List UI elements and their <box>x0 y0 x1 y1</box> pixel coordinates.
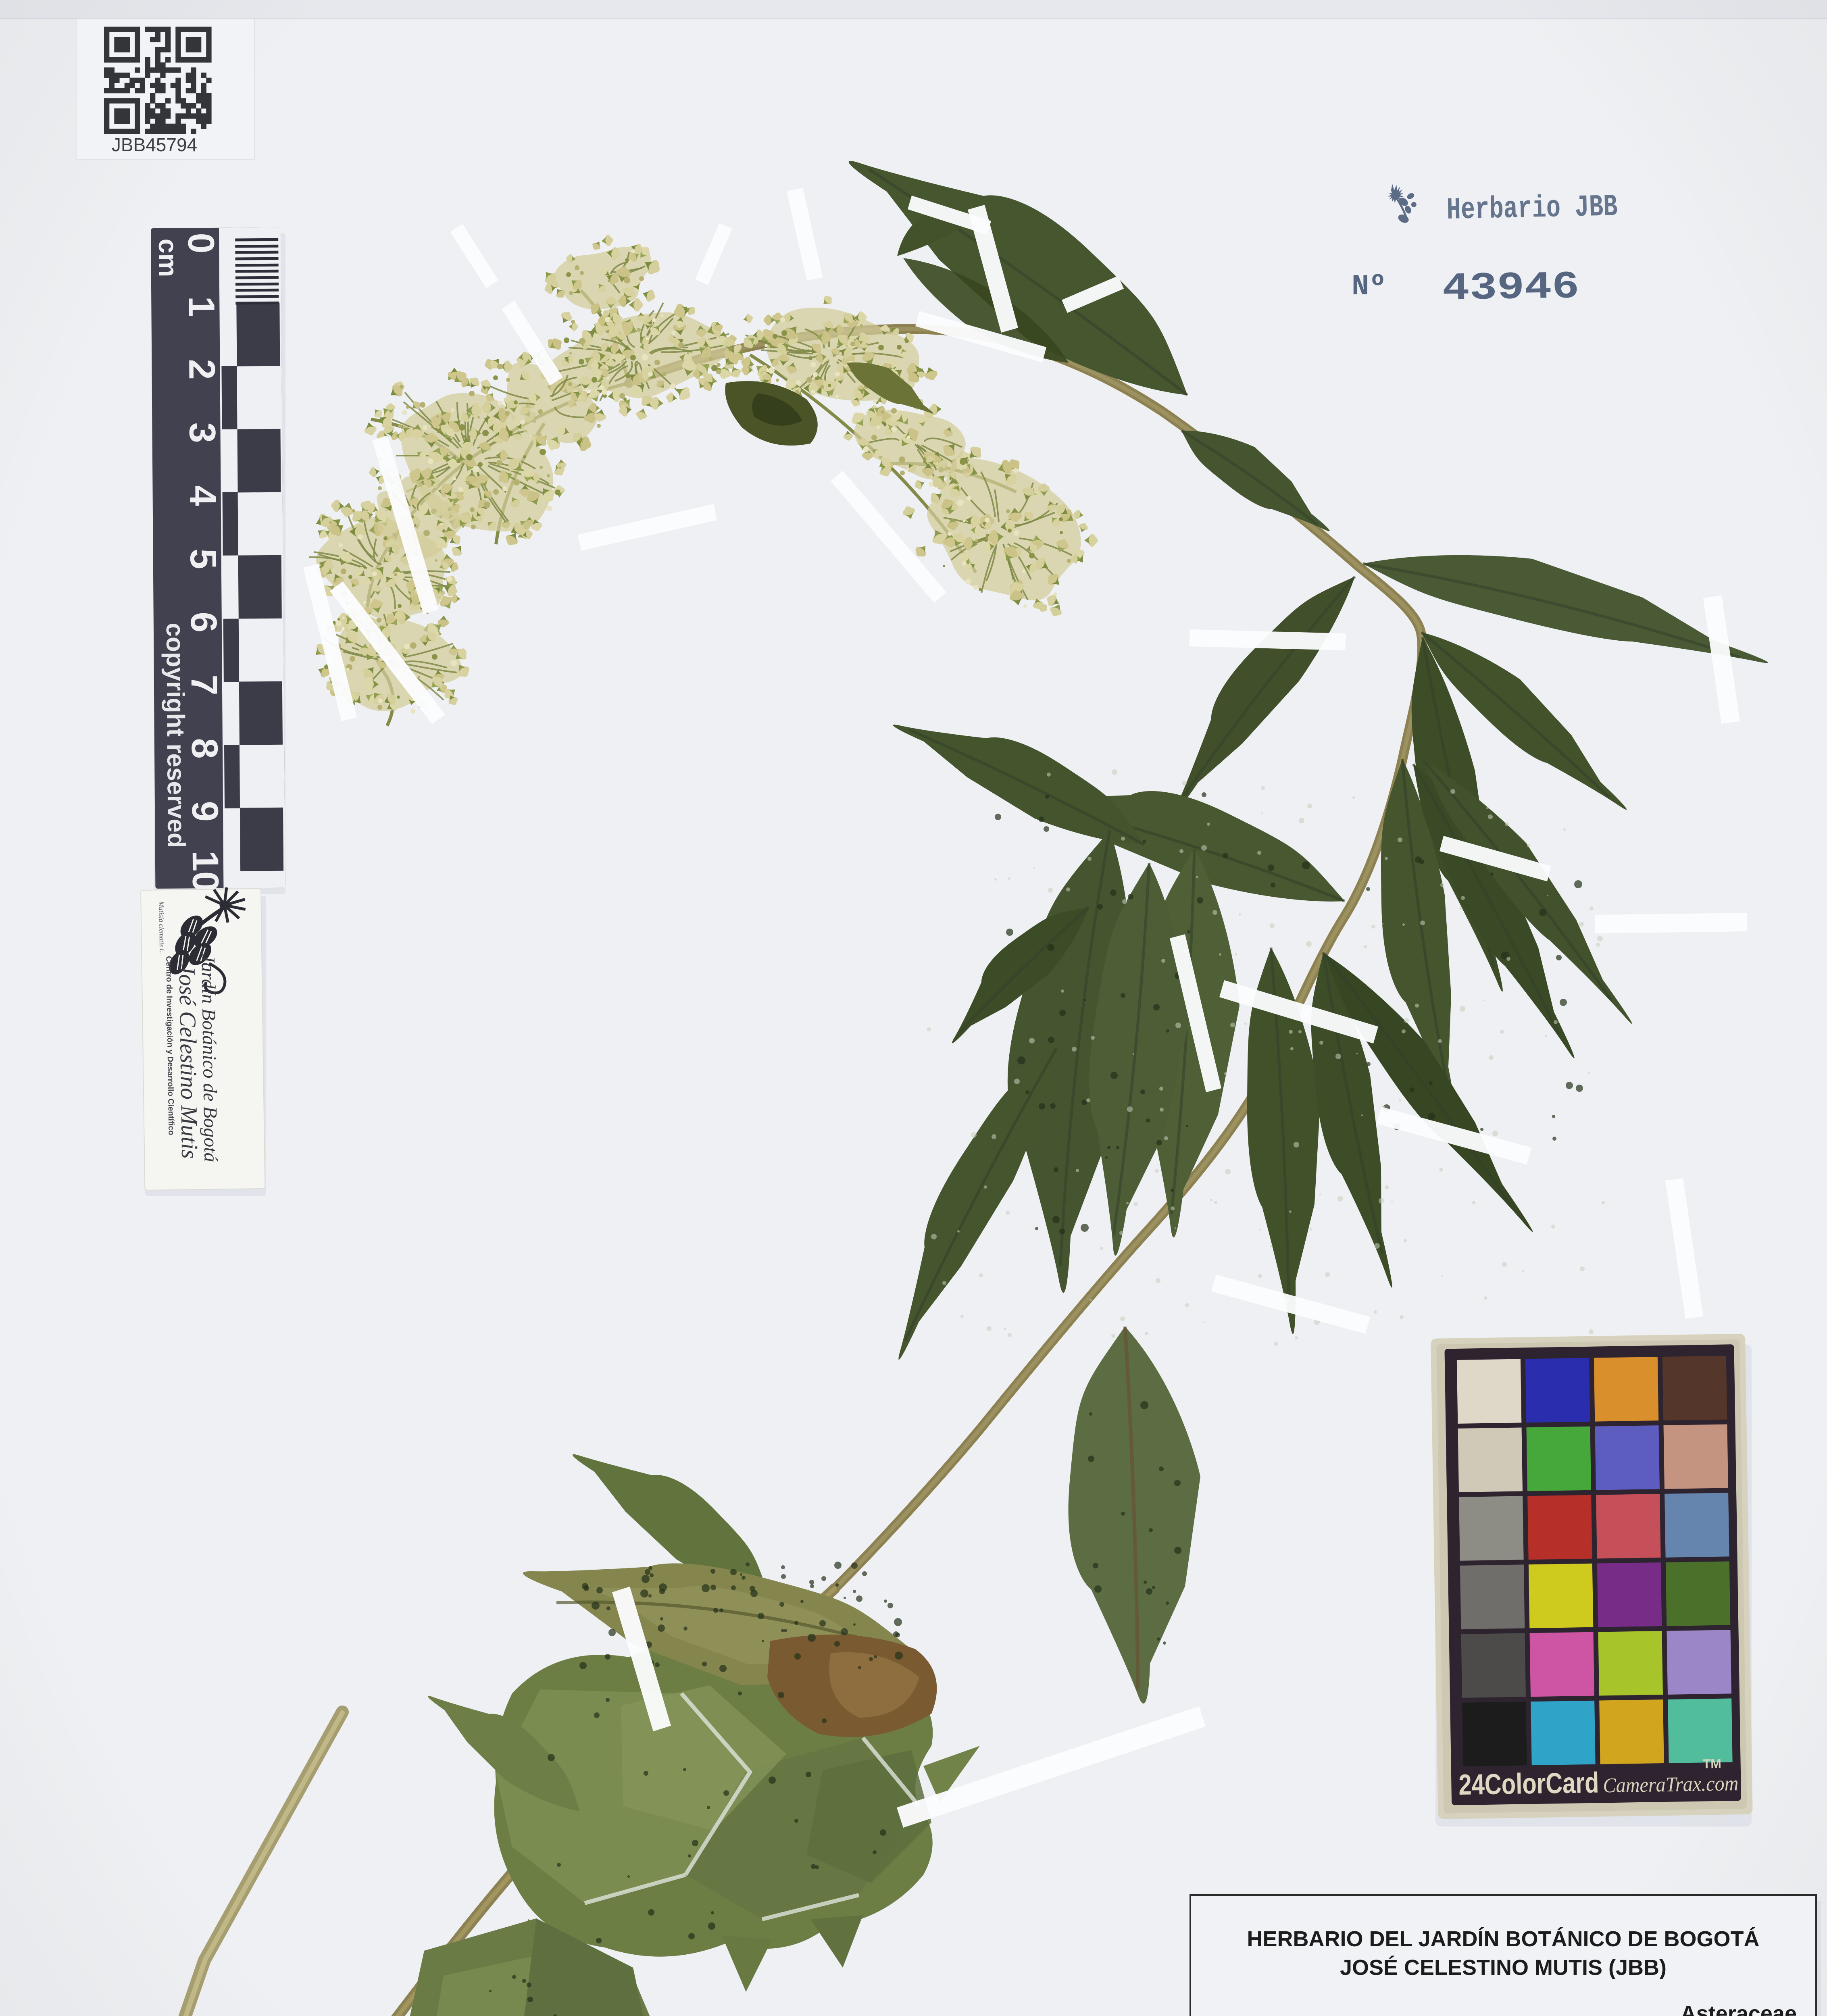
svg-text:Mutisia clematis L.: Mutisia clematis L. <box>157 901 166 954</box>
svg-text:José Celestino Mutis: José Celestino Mutis <box>174 964 203 1159</box>
svg-text:Nº: Nº <box>1352 270 1386 303</box>
svg-text:5: 5 <box>183 548 224 569</box>
svg-text:copyright reserved: copyright reserved <box>161 623 190 848</box>
svg-text:43946: 43946 <box>1442 265 1579 311</box>
svg-text:6: 6 <box>183 612 224 633</box>
svg-text:CameraTrax.com: CameraTrax.com <box>1603 1772 1739 1797</box>
svg-text:9: 9 <box>184 801 225 822</box>
svg-text:24ColorCard: 24ColorCard <box>1458 1767 1599 1801</box>
svg-text:1: 1 <box>181 296 222 317</box>
svg-text:Asteraceae: Asteraceae <box>1681 2001 1797 2016</box>
svg-text:cm: cm <box>153 238 183 277</box>
svg-text:7: 7 <box>183 675 225 696</box>
svg-text:0: 0 <box>180 233 221 254</box>
svg-text:3: 3 <box>181 422 223 443</box>
svg-text:10: 10 <box>185 851 226 892</box>
svg-text:4: 4 <box>182 485 223 506</box>
svg-text:JOSÉ CELESTINO MUTIS (JBB): JOSÉ CELESTINO MUTIS (JBB) <box>1340 1956 1667 1980</box>
svg-text:TM: TM <box>1702 1756 1721 1771</box>
svg-text:8: 8 <box>184 738 225 759</box>
svg-text:JBB45794: JBB45794 <box>112 134 197 155</box>
svg-text:2: 2 <box>181 359 222 380</box>
svg-text:HERBARIO DEL JARDÍN BOTÁNICO D: HERBARIO DEL JARDÍN BOTÁNICO DE BOGOTÁ <box>1247 1927 1759 1951</box>
svg-text:Herbario JBB: Herbario JBB <box>1446 190 1618 228</box>
